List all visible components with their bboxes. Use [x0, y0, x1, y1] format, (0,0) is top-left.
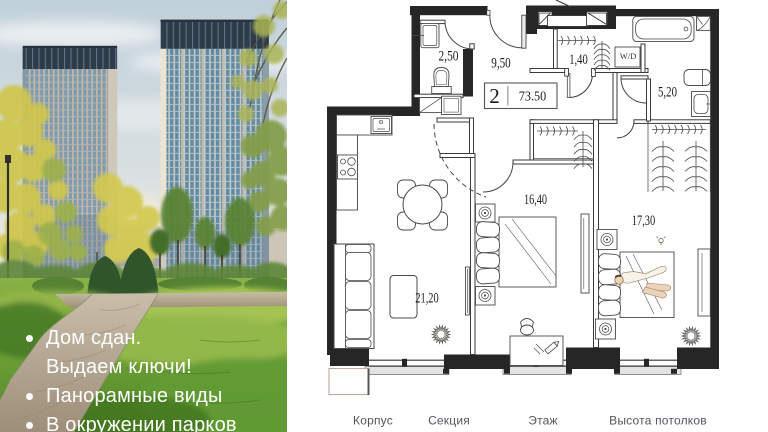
svg-text:Высота потолков: Высота потолков [609, 414, 707, 428]
svg-text:16,40: 16,40 [524, 192, 547, 208]
svg-text:Корпус: Корпус [353, 414, 393, 428]
svg-text:73.50: 73.50 [519, 89, 547, 104]
svg-text:2: 2 [489, 84, 500, 108]
svg-text:9,50: 9,50 [491, 56, 511, 72]
svg-text:17,30: 17,30 [632, 213, 656, 229]
svg-text:Секция: Секция [428, 414, 470, 428]
svg-text:21,20: 21,20 [415, 291, 439, 307]
svg-text:Этаж: Этаж [528, 414, 558, 428]
svg-text:5,20: 5,20 [658, 85, 677, 101]
svg-text:1,40: 1,40 [569, 52, 588, 68]
svg-text:2,50: 2,50 [439, 49, 459, 65]
svg-text:W/D: W/D [620, 51, 637, 61]
